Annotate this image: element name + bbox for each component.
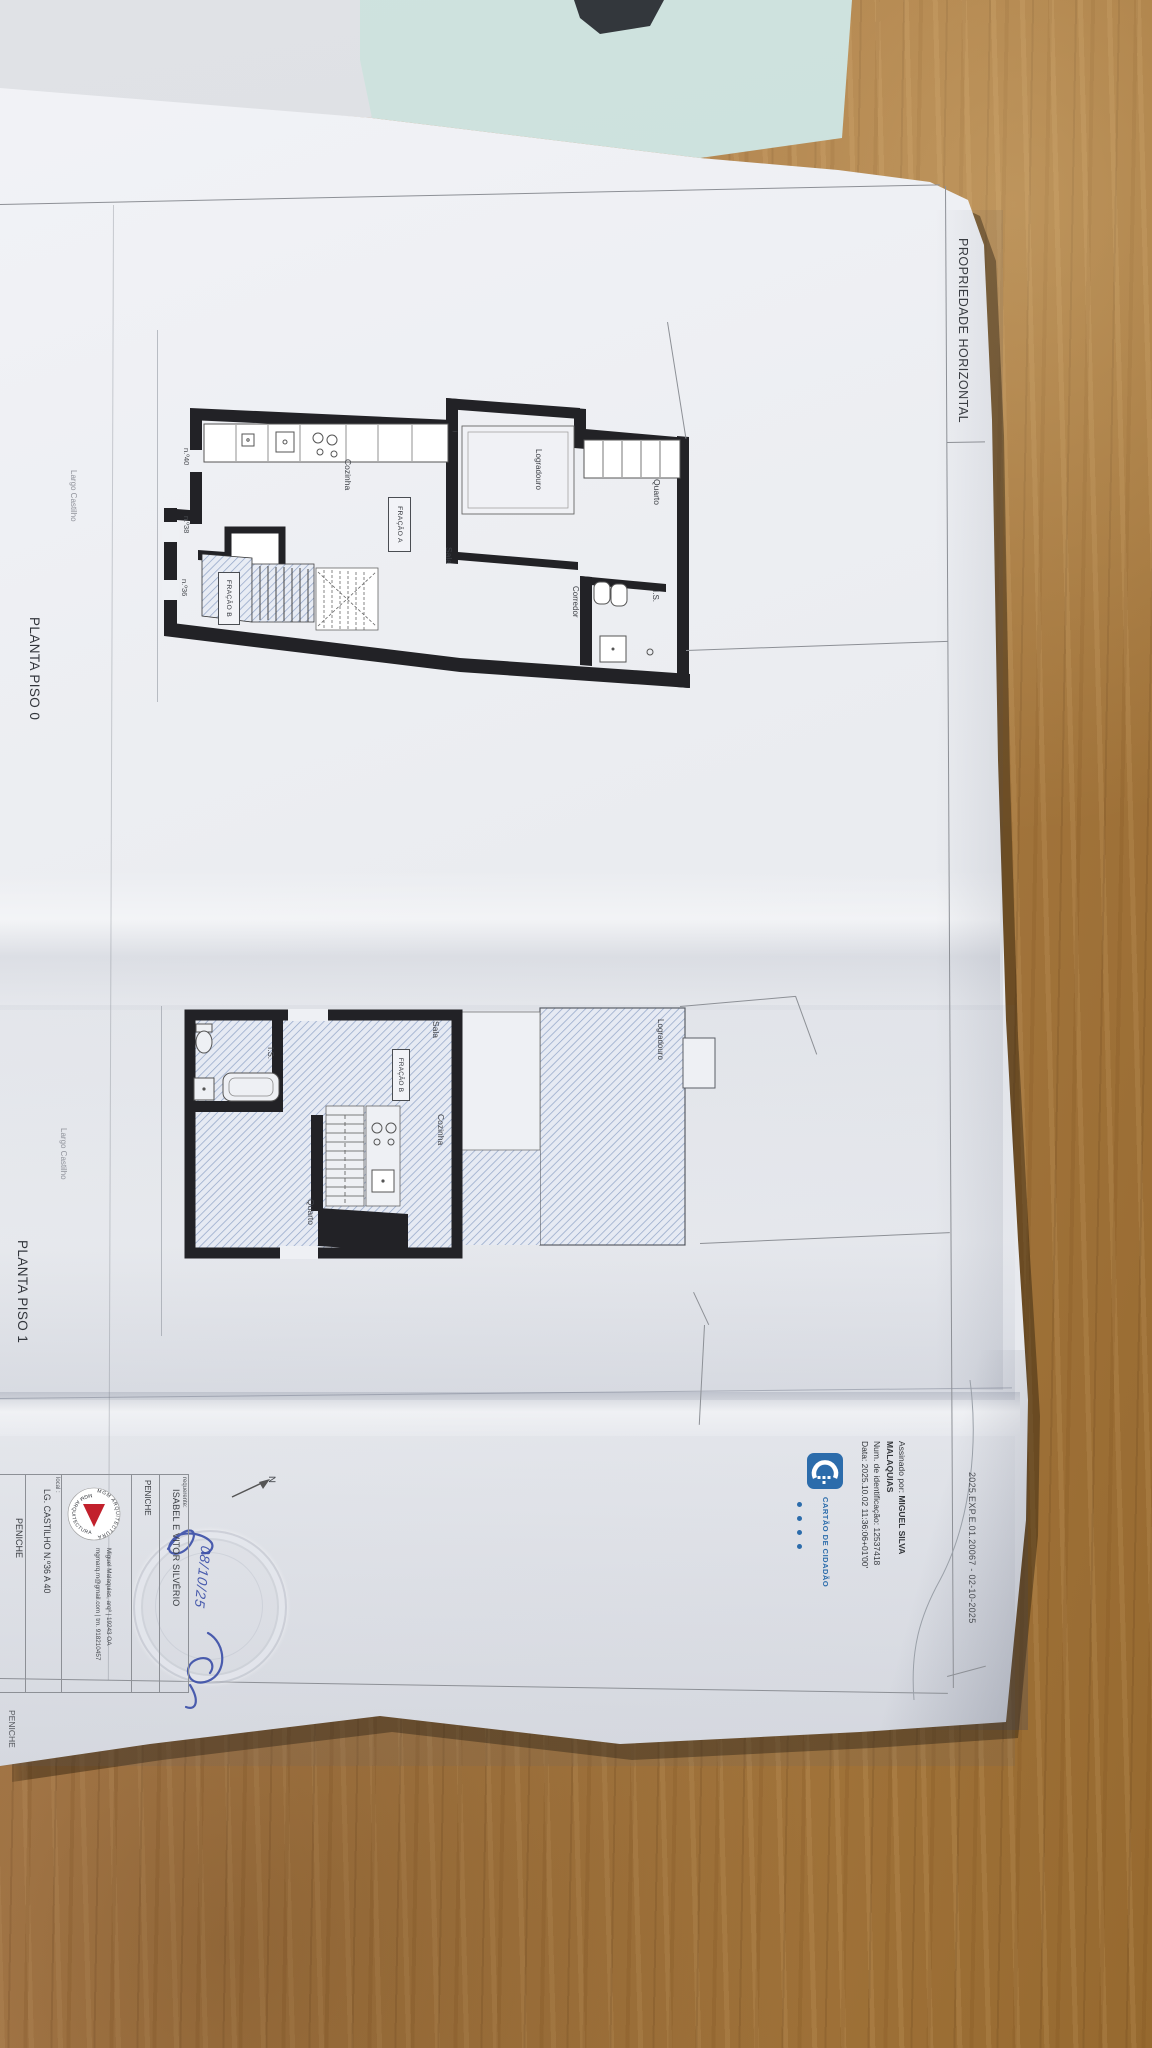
signature-id-line: Num. de identificação: 12537418	[871, 1441, 883, 1606]
signature-date-line: Data: 2025.10.02 11:36:06+01'00'	[859, 1441, 871, 1606]
piso1-room-cozinha: Cozinha	[435, 1114, 445, 1152]
photo-of-floor-plan-document: PROPRIEDADE HORIZONTAL 2025.EXP.E.01.200…	[0, 0, 1152, 2048]
piso0-number-40: n.º40	[181, 448, 190, 475]
digital-signature-block: Assinado por: MIGUEL SILVA MALAQUIAS Num…	[859, 1441, 908, 1606]
titleblock-border	[25, 1474, 26, 1692]
floor-plan-piso1	[168, 998, 728, 1278]
architect-line-2: mgmarq.m@gmail.com | tm. 918210457	[94, 1548, 101, 1690]
piso0-plan-title: PLANTA PISO 0	[26, 617, 42, 727]
local-label: local :	[53, 1477, 60, 1507]
architect-line-1: Miguel Malaquias, arqº | 19243 OA	[105, 1548, 112, 1690]
titleblock-border	[159, 1474, 160, 1692]
undersheet-city: PENICHE	[6, 1710, 16, 1762]
signature-line-1: Assinado por: MIGUEL SILVA	[896, 1441, 908, 1606]
cc-dot	[797, 1530, 802, 1535]
cc-dot	[797, 1502, 802, 1507]
cc-dot	[797, 1544, 802, 1549]
piso0-fracao-a-label: FRAÇÃO A	[388, 497, 411, 552]
requerente-city: PENICHE	[143, 1480, 152, 1525]
page-title: PROPRIEDADE HORIZONTAL	[956, 238, 970, 433]
street-curb-line	[161, 1006, 162, 1336]
piso1-room-is: I.S.	[266, 1047, 275, 1066]
mgm-arquitectos-logo-icon: MGM ARQUITECTURA MGM ARQUITECTURA	[66, 1486, 122, 1542]
piso0-room-sala: Sala	[443, 547, 453, 572]
piso0-number-38: n.º38	[181, 516, 190, 543]
titleblock-border	[61, 1474, 62, 1692]
north-label: N	[265, 1476, 276, 1490]
piso0-street-label: Largo Castilho	[69, 470, 78, 530]
piso1-room-logradouro: Logradouro	[656, 1019, 665, 1073]
local-city: PENICHE	[14, 1518, 24, 1578]
title-block: requerente: ISABEL E VITOR SILVÉRIO PENI…	[0, 1472, 192, 1704]
piso1-street-label: Largo Castilho	[59, 1128, 68, 1186]
signature-label: Assinado por:	[897, 1441, 907, 1495]
cartao-de-cidadao-logo-icon	[806, 1452, 844, 1490]
cc-dot	[797, 1516, 802, 1521]
titleblock-border	[0, 1474, 189, 1475]
floor-plan-piso0	[150, 318, 710, 698]
piso1-room-sala: Sala	[430, 1021, 440, 1046]
signature-name-1: MIGUEL SILVA	[897, 1495, 907, 1554]
signature-name-2: MALAQUIAS	[885, 1441, 895, 1492]
fold-crease-lower	[0, 1392, 1020, 1436]
piso0-room-cozinha: Cozinha	[342, 459, 352, 496]
cartao-de-cidadao-text: CARTÃO DE CIDADÃO	[820, 1497, 829, 1607]
piso1-plan-title: PLANTA PISO 1	[14, 1240, 30, 1358]
signature-line-2: MALAQUIAS	[883, 1441, 895, 1606]
piso0-room-is: I.S.	[651, 590, 660, 609]
piso0-fracao-b-label: FRAÇÃO B	[218, 572, 240, 625]
fold-crease-upper	[0, 870, 1000, 1010]
piso0-room-corredor: Corredor	[571, 586, 580, 627]
titleblock-border	[188, 1474, 189, 1692]
piso1-fracao-b-label: FRAÇÃO B	[392, 1049, 410, 1101]
piso1-room-quarto: Quarto	[305, 1199, 315, 1234]
requerente-label: requerente:	[180, 1477, 187, 1537]
street-curb-line	[157, 330, 158, 702]
local-address: LG. CASTILHO N.º36 A 40	[42, 1489, 52, 1687]
piso0-room-logradouro: Logradouro	[534, 449, 543, 502]
requerente-name: ISABEL E VITOR SILVÉRIO	[171, 1489, 181, 1689]
titleblock-border	[131, 1474, 132, 1692]
piso0-number-36: n.º36	[179, 579, 188, 606]
file-reference: 2025.EXP.E.01.20067 - 02-10-2025	[967, 1472, 977, 1677]
titleblock-border	[0, 1692, 189, 1693]
piso0-room-quarto: Quarto	[651, 479, 661, 512]
